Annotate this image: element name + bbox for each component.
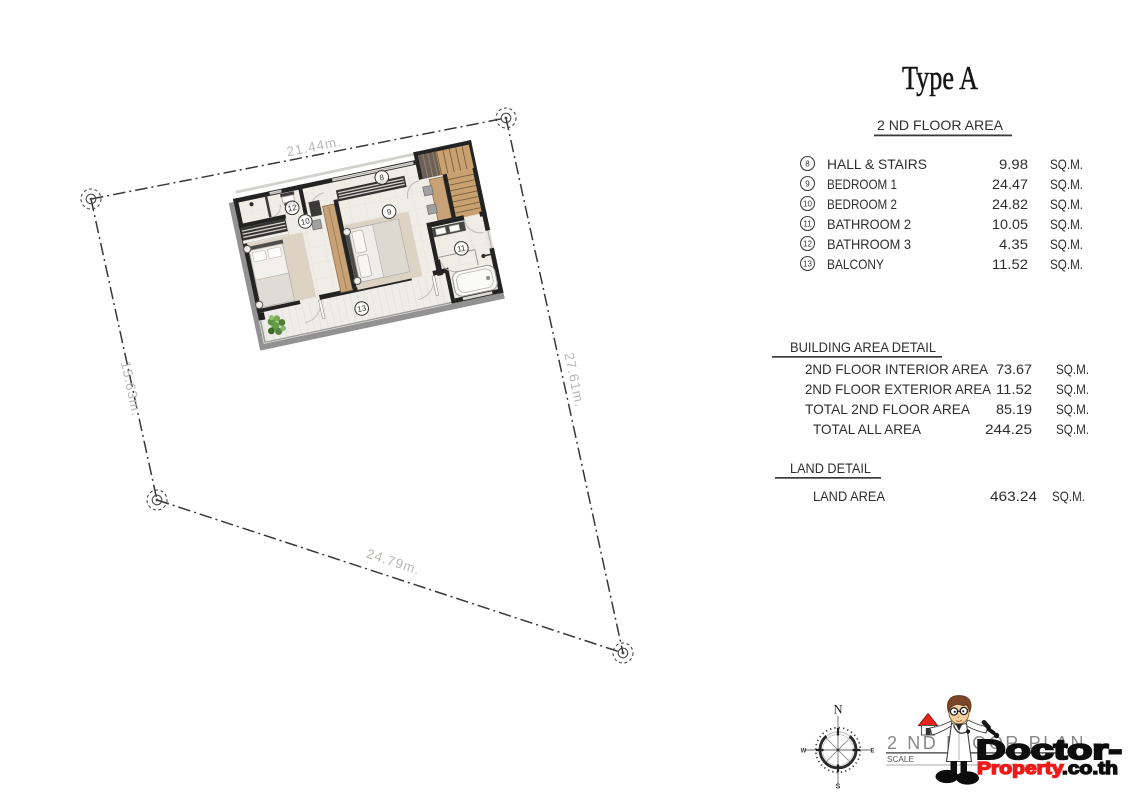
svg-text:BATHROOM 3: BATHROOM 3 [827, 237, 911, 252]
svg-text:SQ.M.: SQ.M. [1050, 177, 1083, 192]
svg-text:12: 12 [803, 240, 812, 249]
svg-text:2ND FLOOR EXTERIOR AREA: 2ND FLOOR EXTERIOR AREA [805, 382, 992, 397]
svg-text:LAND AREA: LAND AREA [813, 489, 886, 504]
svg-text:SQ.M.: SQ.M. [1050, 237, 1083, 252]
svg-text:SQ.M.: SQ.M. [1050, 257, 1083, 272]
svg-text:BEDROOM 1: BEDROOM 1 [827, 177, 897, 192]
svg-text:E: E [870, 749, 874, 755]
svg-text:BALCONY: BALCONY [827, 257, 884, 272]
svg-text:SQ.M.: SQ.M. [1056, 402, 1089, 417]
svg-text:W: W [801, 749, 807, 755]
svg-text:11.52: 11.52 [996, 382, 1032, 397]
svg-text:Type A: Type A [902, 60, 978, 97]
svg-text:SQ.M.: SQ.M. [1052, 489, 1085, 504]
svg-text:463.24: 463.24 [990, 489, 1037, 504]
svg-text:TOTAL ALL AREA: TOTAL ALL AREA [813, 422, 922, 437]
svg-text:13: 13 [803, 260, 812, 269]
svg-text:2ND FLOOR INTERIOR AREA: 2ND FLOOR INTERIOR AREA [805, 362, 989, 377]
svg-text:244.25: 244.25 [985, 422, 1032, 437]
svg-text:SQ.M.: SQ.M. [1050, 157, 1083, 172]
svg-text:73.67: 73.67 [996, 362, 1032, 377]
svg-text:LAND DETAIL: LAND DETAIL [790, 461, 871, 476]
svg-text:10: 10 [803, 200, 812, 209]
svg-text:BEDROOM 2: BEDROOM 2 [827, 197, 897, 212]
svg-text:HALL & STAIRS: HALL & STAIRS [827, 157, 927, 172]
svg-text:SQ.M.: SQ.M. [1056, 382, 1089, 397]
svg-text:85.19: 85.19 [996, 402, 1032, 417]
svg-text:9: 9 [805, 180, 810, 189]
svg-text:SQ.M.: SQ.M. [1050, 197, 1083, 212]
svg-text:TOTAL 2ND FLOOR AREA: TOTAL 2ND FLOOR AREA [805, 402, 971, 417]
svg-text:BUILDING AREA DETAIL: BUILDING AREA DETAIL [790, 340, 936, 355]
svg-text:24.82: 24.82 [992, 197, 1028, 212]
svg-text:24.47: 24.47 [992, 177, 1028, 192]
svg-text:SQ.M.: SQ.M. [1056, 362, 1089, 377]
svg-text:BATHROOM 2: BATHROOM 2 [827, 217, 911, 232]
svg-text:2 ND FLOOR AREA: 2 ND FLOOR AREA [877, 118, 1004, 133]
svg-text:SCALE: SCALE [887, 754, 914, 764]
svg-text:S: S [836, 784, 841, 791]
svg-text:11.52: 11.52 [992, 257, 1028, 272]
svg-text:SQ.M.: SQ.M. [1056, 422, 1089, 437]
svg-text:8: 8 [805, 160, 810, 169]
svg-text:11: 11 [803, 220, 812, 229]
svg-text:9.98: 9.98 [999, 157, 1028, 172]
svg-text:10.05: 10.05 [992, 217, 1028, 232]
svg-text:Property.co.th: Property.co.th [977, 758, 1118, 778]
svg-text:N: N [833, 703, 842, 717]
svg-text:SQ.M.: SQ.M. [1050, 217, 1083, 232]
svg-text:4.35: 4.35 [999, 237, 1028, 252]
